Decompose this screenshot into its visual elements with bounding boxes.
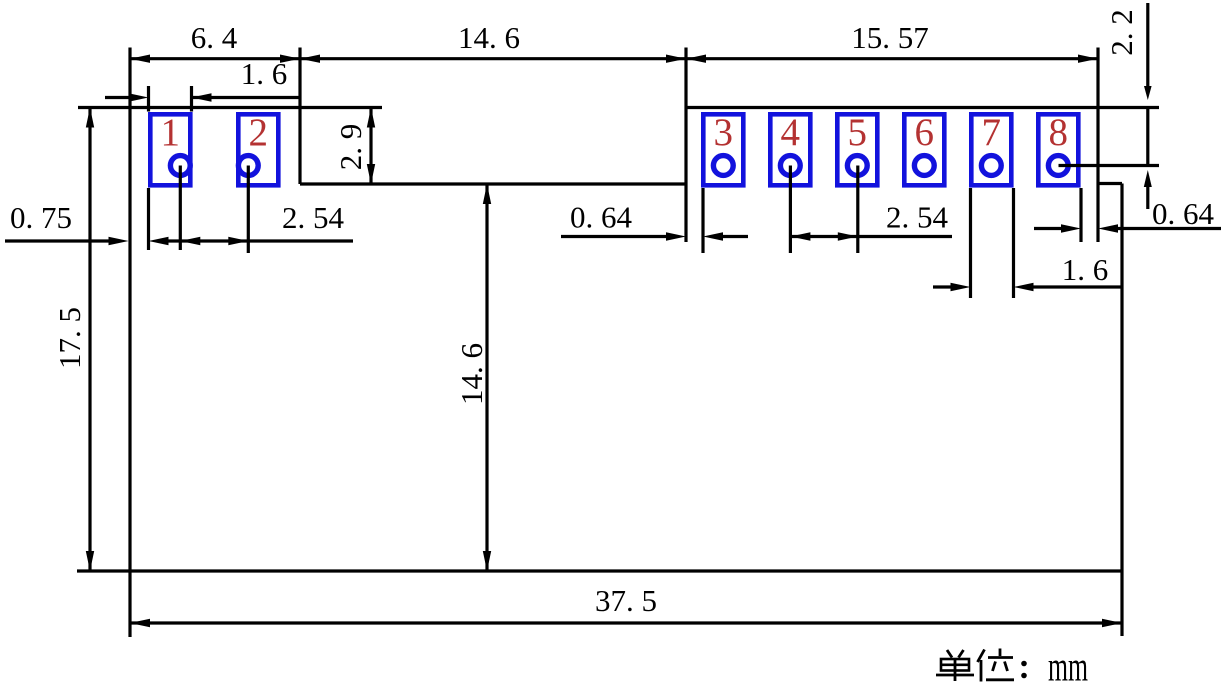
svg-text:15. 57: 15. 57 — [851, 20, 929, 55]
svg-text:0. 64: 0. 64 — [1152, 196, 1215, 231]
svg-text:mm: mm — [1048, 645, 1088, 691]
svg-text:2. 9: 2. 9 — [333, 124, 368, 171]
svg-text:0. 64: 0. 64 — [570, 200, 633, 235]
svg-text:3: 3 — [714, 111, 734, 154]
svg-text:6. 4: 6. 4 — [191, 20, 238, 55]
svg-text:2. 54: 2. 54 — [282, 200, 345, 235]
svg-text:4: 4 — [781, 111, 801, 154]
svg-text:37. 5: 37. 5 — [595, 583, 657, 618]
svg-text:7: 7 — [982, 111, 1002, 154]
svg-text:2: 2 — [249, 111, 269, 154]
svg-text:1. 6: 1. 6 — [241, 56, 288, 91]
svg-text:8: 8 — [1049, 111, 1069, 154]
svg-text:2. 2: 2. 2 — [1104, 9, 1139, 56]
svg-text:1. 6: 1. 6 — [1062, 252, 1109, 287]
svg-text:5: 5 — [848, 111, 868, 154]
svg-text:17. 5: 17. 5 — [52, 307, 87, 369]
svg-text:14. 6: 14. 6 — [454, 343, 489, 405]
svg-text:0. 75: 0. 75 — [10, 200, 72, 235]
svg-text:6: 6 — [915, 111, 935, 154]
svg-text:14. 6: 14. 6 — [458, 20, 520, 55]
svg-text:1: 1 — [161, 111, 181, 154]
svg-text:2. 54: 2. 54 — [886, 200, 949, 235]
